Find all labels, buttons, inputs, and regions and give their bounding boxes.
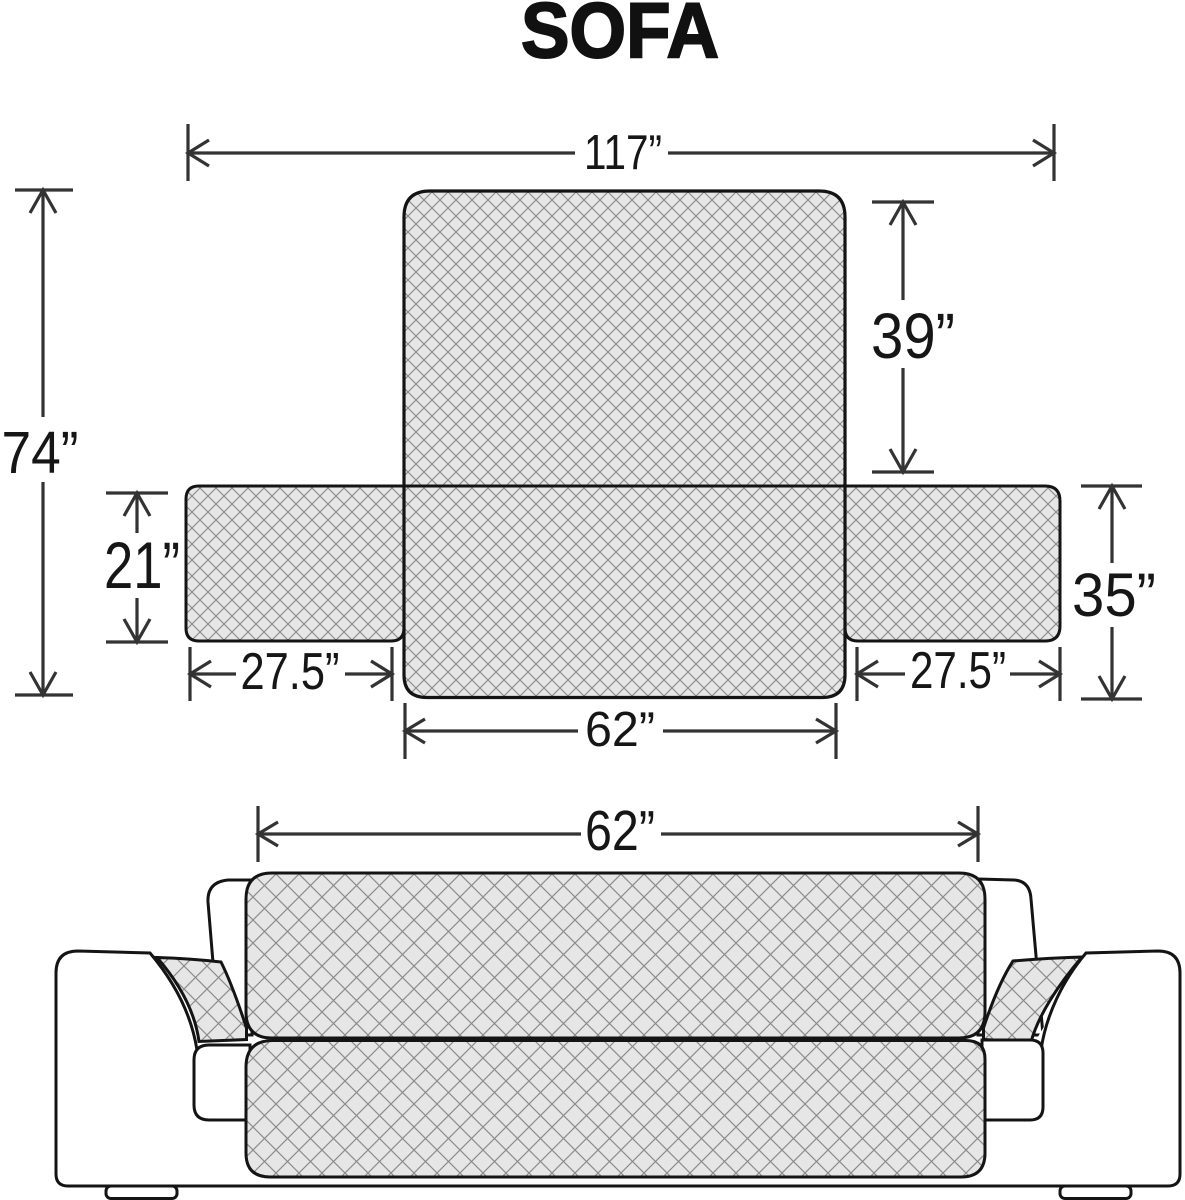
svg-text:35”: 35” (1072, 561, 1156, 629)
svg-text:62”: 62” (585, 703, 655, 757)
svg-text:74”: 74” (2, 420, 79, 486)
svg-text:117”: 117” (584, 126, 662, 180)
svg-text:39”: 39” (871, 300, 955, 372)
svg-text:21”: 21” (104, 528, 180, 602)
svg-text:27.5”: 27.5” (910, 642, 1006, 700)
svg-text:27.5”: 27.5” (241, 643, 340, 701)
svg-text:62”: 62” (585, 799, 655, 863)
svg-text:SOFA: SOFA (521, 0, 719, 74)
